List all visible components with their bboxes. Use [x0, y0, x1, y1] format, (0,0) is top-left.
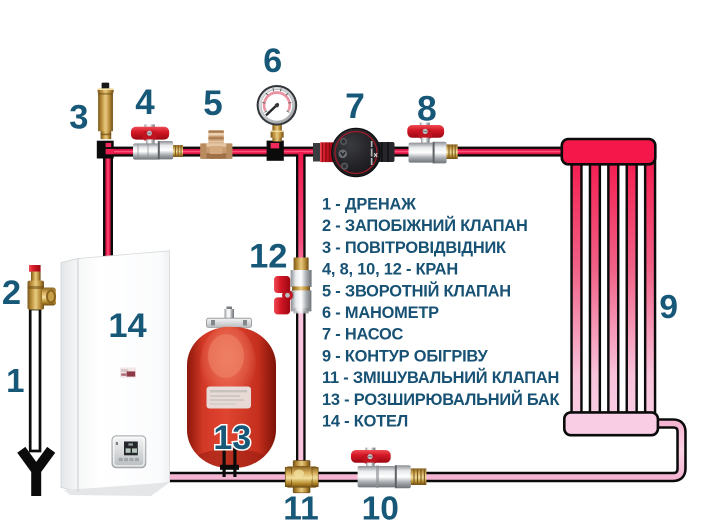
svg-text:9: 9 [659, 289, 678, 326]
svg-text:13: 13 [213, 419, 251, 457]
svg-text:9 - КОНТУР ОБІГРІВУ: 9 - КОНТУР ОБІГРІВУ [322, 347, 488, 365]
svg-text:8: 8 [417, 88, 437, 128]
svg-text:5 - ЗВОРОТНІЙ КЛАПАН: 5 - ЗВОРОТНІЙ КЛАПАН [322, 281, 511, 300]
svg-text:7 - НАСОС: 7 - НАСОС [322, 326, 404, 344]
svg-text:2 - ЗАПОБІЖНИЙ КЛАПАН: 2 - ЗАПОБІЖНИЙ КЛАПАН [322, 216, 528, 235]
svg-text:4, 8, 10, 12 - КРАН: 4, 8, 10, 12 - КРАН [322, 261, 458, 279]
svg-text:2: 2 [2, 274, 21, 312]
svg-text:7: 7 [345, 86, 365, 126]
svg-text:6: 6 [263, 42, 282, 80]
svg-text:14 - КОТЕЛ: 14 - КОТЕЛ [322, 413, 408, 431]
svg-text:12: 12 [249, 238, 287, 276]
svg-text:1: 1 [6, 362, 24, 399]
svg-text:13 - РОЗШИРЮВАЛЬНИЙ БАК: 13 - РОЗШИРЮВАЛЬНИЙ БАК [322, 390, 561, 409]
svg-text:4: 4 [135, 83, 155, 122]
svg-text:11 - ЗМІШУВАЛЬНИЙ КЛАПАН: 11 - ЗМІШУВАЛЬНИЙ КЛАПАН [322, 368, 559, 387]
svg-text:1 - ДРЕНАЖ: 1 - ДРЕНАЖ [322, 196, 416, 214]
svg-text:3 - ПОВІТРОВІДВІДНИК: 3 - ПОВІТРОВІДВІДНИК [322, 239, 507, 257]
svg-text:5: 5 [203, 84, 222, 123]
svg-text:6 - МАНОМЕТР: 6 - МАНОМЕТР [322, 304, 439, 322]
svg-text:10: 10 [362, 490, 399, 527]
svg-text:11: 11 [283, 490, 318, 527]
svg-text:14: 14 [108, 307, 146, 345]
svg-text:3: 3 [69, 98, 88, 136]
